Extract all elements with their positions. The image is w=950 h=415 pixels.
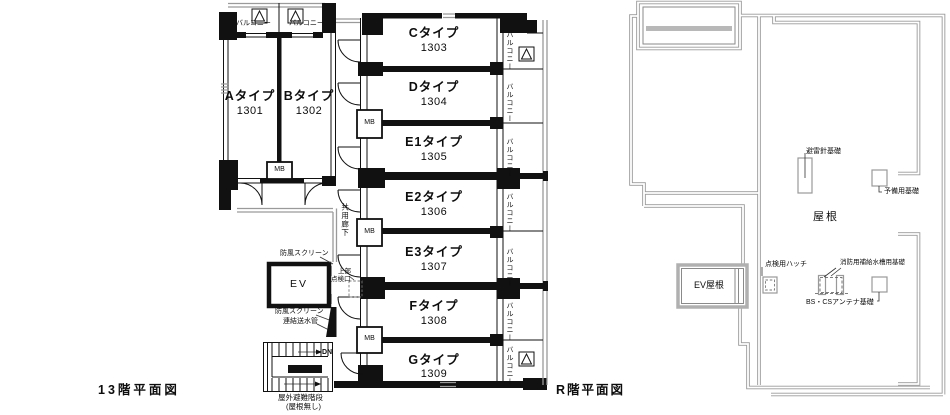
- balcony-label-g: バルコニー: [505, 346, 513, 380]
- balcony-label-e3: バルコニー: [505, 248, 513, 282]
- roof-outline: [631, 3, 944, 395]
- balcony-label-e1: バルコニー: [505, 138, 513, 172]
- inspection-hatch-label: 点検用ハッチ: [765, 261, 807, 269]
- balcony-label-f: バルコニー: [505, 302, 513, 336]
- wind-screen-label-2: 防風スクリーン: [275, 308, 324, 316]
- roof-fixtures: [762, 153, 887, 301]
- down-label: DN: [322, 349, 332, 357]
- upper-inspection-label-line2: 点検口: [331, 276, 351, 283]
- plan-title-13f: 13階平面図: [98, 383, 180, 397]
- mb-label-1: MB: [357, 119, 382, 127]
- mb-label-2: MB: [357, 228, 382, 236]
- unit-c-number: 1303: [379, 42, 489, 55]
- balcony-label-b: バルコニー: [289, 20, 324, 28]
- unit-e2-number: 1306: [379, 206, 489, 219]
- unit-d-type: Dタイプ: [379, 80, 489, 94]
- unit-b-number: 1302: [281, 105, 337, 118]
- unit-e3-type: E3タイプ: [379, 245, 489, 259]
- balcony-label-c: バルコニー: [505, 31, 513, 65]
- floor-plan-sheet: バルコニー バルコニー Aタイプ 1301 Bタイプ 1302 MB Cタイプ …: [0, 0, 950, 415]
- unit-f-type: Fタイプ: [379, 299, 489, 313]
- standpipe-label: 連結送水管: [283, 318, 318, 326]
- balcony-label-a: バルコニー: [236, 20, 271, 28]
- elevator-label: EV: [269, 278, 329, 290]
- fire-water-tank-base-label: 消防用補給水槽用基礎: [840, 259, 905, 266]
- balcony-label-e2: バルコニー: [505, 193, 513, 227]
- upper-inspection-label-line1: 上部: [338, 268, 351, 275]
- reserve-base-label: 予備用基礎: [884, 188, 919, 196]
- ev-roof-label: EV屋根: [680, 280, 738, 290]
- unit-e3-number: 1307: [379, 261, 489, 274]
- unit-e1-type: E1タイプ: [379, 135, 489, 149]
- roof-label: 屋根: [813, 211, 839, 224]
- unit-e1-number: 1305: [379, 151, 489, 164]
- unit-a-number: 1301: [222, 105, 278, 118]
- unit-d-number: 1304: [379, 96, 489, 109]
- plan-title-roof: R階平面図: [556, 383, 625, 397]
- balcony-label-d: バルコニー: [505, 83, 513, 117]
- mb-label-ab: MB: [267, 166, 292, 174]
- unit-g-type: Gタイプ: [379, 353, 489, 367]
- no-roof-label: (屋根無し): [286, 403, 321, 412]
- unit-e2-type: E2タイプ: [379, 190, 489, 204]
- unit-b-type: Bタイプ: [281, 89, 337, 103]
- unit-f-number: 1308: [379, 315, 489, 328]
- corridor-label: 共用廊下: [340, 203, 349, 251]
- wind-screen-label-1: 防風スクリーン: [280, 250, 329, 258]
- unit-g-number: 1309: [379, 368, 489, 381]
- lightning-rod-base-label: 避雷針基礎: [806, 148, 841, 156]
- unit-a-type: Aタイプ: [222, 89, 278, 103]
- unit-c-type: Cタイプ: [379, 26, 489, 40]
- mb-label-3: MB: [357, 335, 382, 343]
- bs-cs-antenna-base-label: BS・CSアンテナ基礎: [806, 299, 874, 307]
